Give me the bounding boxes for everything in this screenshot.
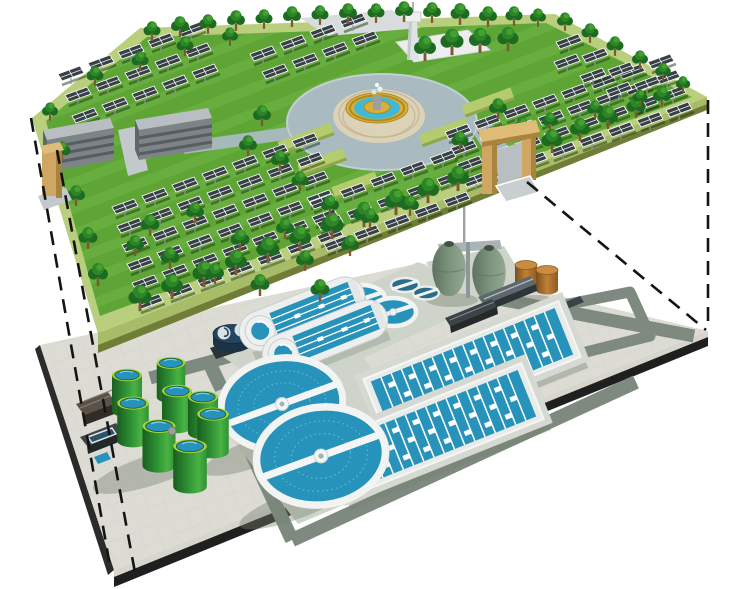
illustration-canvas xyxy=(0,0,740,589)
manhole xyxy=(168,427,176,435)
brown-tank-2 xyxy=(536,266,558,295)
cutaway-illustration xyxy=(0,0,740,589)
sludge-storage-tank xyxy=(173,439,207,493)
entrance-gate-east xyxy=(478,120,540,202)
digester-center-post xyxy=(466,242,470,298)
small-tank-2 xyxy=(413,287,439,300)
